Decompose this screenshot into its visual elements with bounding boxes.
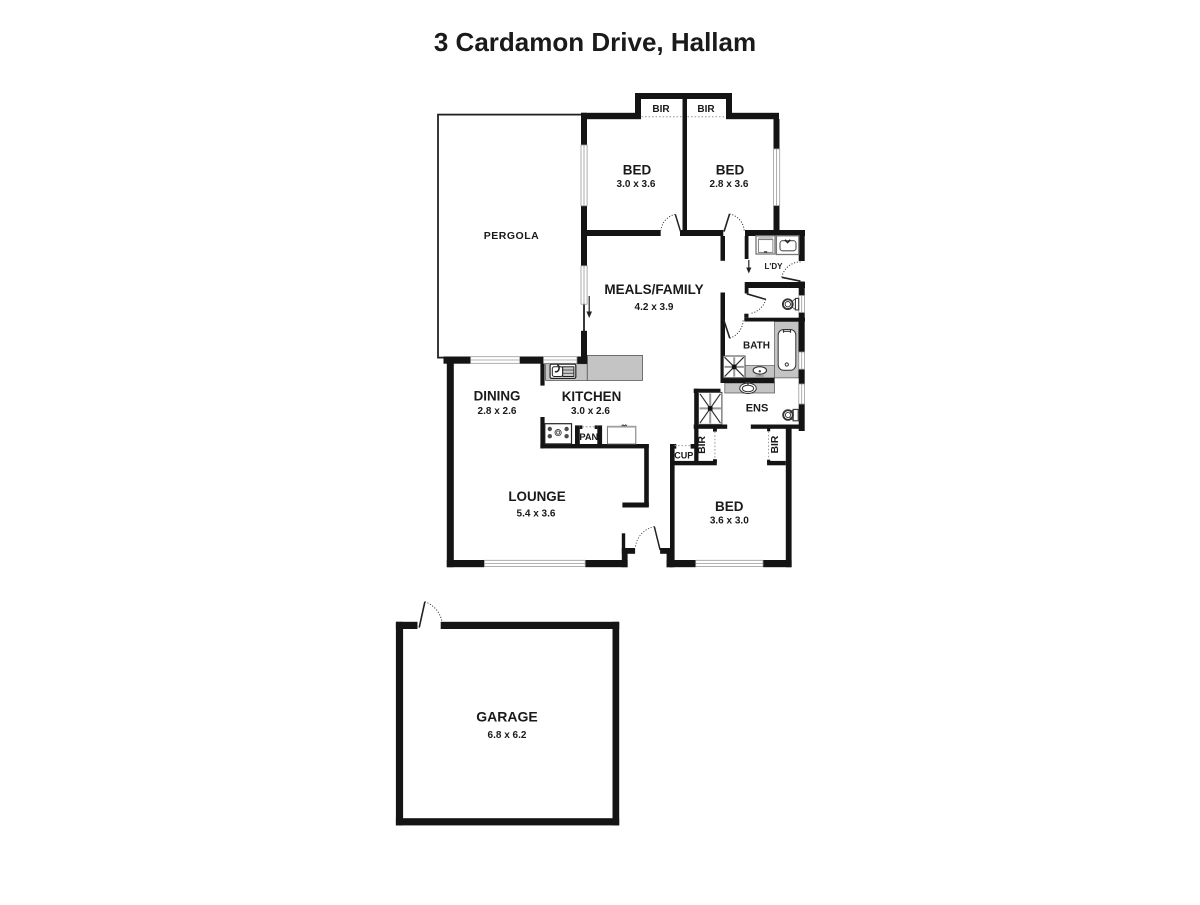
svg-text:3.0 x 3.6: 3.0 x 3.6 [617,179,656,190]
svg-text:BED: BED [715,499,744,514]
svg-text:GARAGE: GARAGE [476,709,537,725]
svg-text:5.4 x 3.6: 5.4 x 3.6 [517,509,556,520]
svg-text:3.0 x 2.6: 3.0 x 2.6 [571,406,610,417]
svg-text:2.8 x 2.6: 2.8 x 2.6 [478,406,517,417]
svg-text:L'DY: L'DY [765,262,784,271]
svg-text:ENS: ENS [746,403,769,415]
svg-text:PAN: PAN [579,432,598,442]
svg-text:KITCHEN: KITCHEN [562,389,622,404]
svg-text:PERGOLA: PERGOLA [484,230,539,242]
svg-text:BATH: BATH [743,341,770,352]
svg-text:DINING: DINING [474,389,521,404]
svg-text:BED: BED [716,162,745,177]
svg-text:CUP: CUP [674,451,693,461]
svg-text:BED: BED [623,162,652,177]
svg-text:LOUNGE: LOUNGE [508,489,565,504]
svg-text:2.8 x 3.6: 2.8 x 3.6 [710,179,749,190]
svg-text:4.2 x 3.9: 4.2 x 3.9 [635,302,674,313]
svg-text:BIR: BIR [697,104,715,115]
svg-text:3.6 x 3.0: 3.6 x 3.0 [710,516,749,527]
svg-text:3 Cardamon Drive, Hallam: 3 Cardamon Drive, Hallam [434,27,756,57]
svg-text:MEALS/FAMILY: MEALS/FAMILY [604,282,703,297]
svg-text:BIR: BIR [770,435,781,453]
svg-text:BIR: BIR [697,435,708,453]
svg-text:6.8 x 6.2: 6.8 x 6.2 [488,730,527,741]
svg-text:BIR: BIR [652,104,670,115]
